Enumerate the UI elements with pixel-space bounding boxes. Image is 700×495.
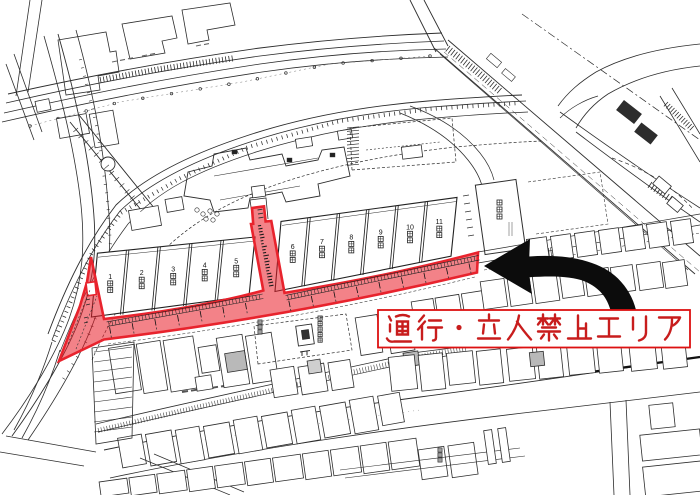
svg-text:4: 4	[203, 262, 207, 269]
svg-text:8: 8	[349, 234, 353, 241]
svg-text:1: 1	[108, 274, 112, 281]
svg-text:10: 10	[406, 224, 414, 231]
svg-text:9: 9	[379, 229, 383, 236]
svg-text:6: 6	[291, 244, 295, 251]
svg-text:5: 5	[234, 258, 238, 265]
svg-text:3: 3	[171, 266, 175, 273]
svg-text:7: 7	[320, 239, 324, 246]
svg-text:2: 2	[140, 270, 144, 277]
svg-text:11: 11	[436, 219, 443, 226]
